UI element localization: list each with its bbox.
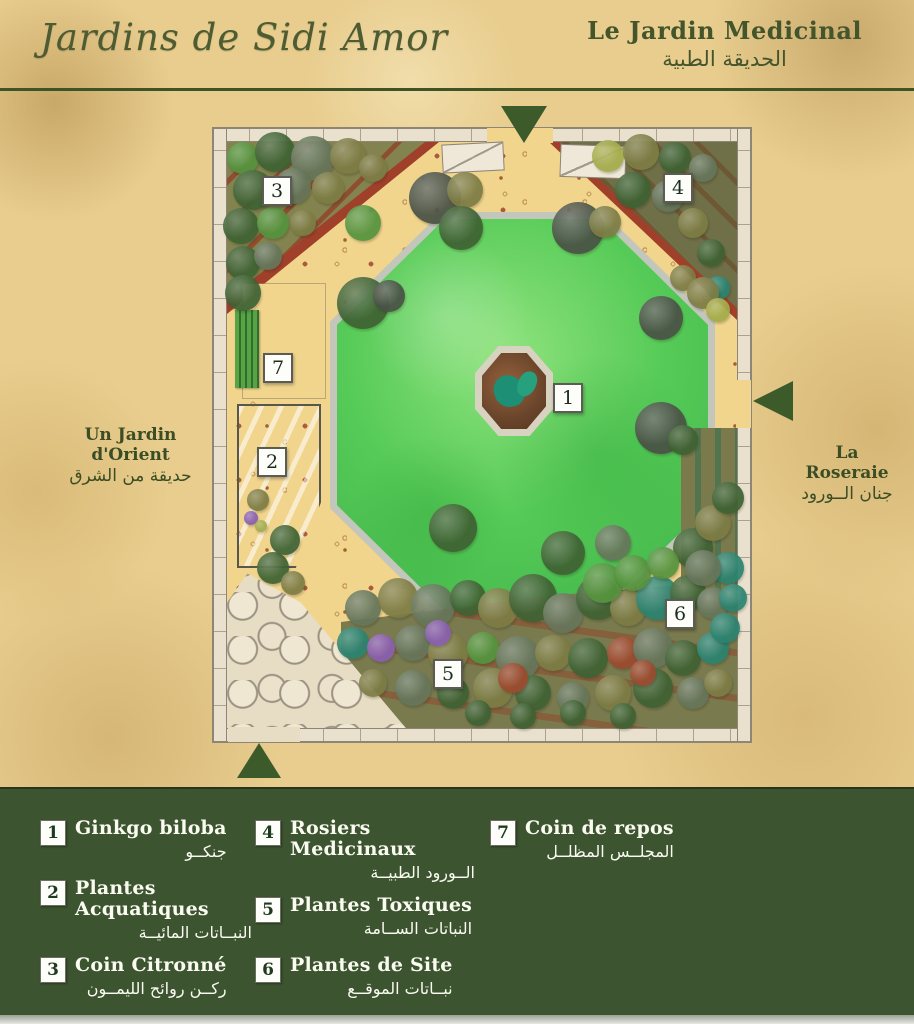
plant-blob	[685, 550, 721, 586]
plant-blob	[373, 280, 405, 312]
plant-blob	[395, 670, 431, 706]
central-planter-soil	[482, 353, 546, 429]
legend-column-1: 1 Ginkgo bilobaجنكــو 2 Plantes Acquatiq…	[40, 818, 252, 1015]
legend-column-3: 7 Coin de reposالمجلــس المظلــل	[490, 818, 710, 878]
legend-badge-5: 5	[255, 897, 281, 923]
plant-blob	[510, 703, 536, 729]
plant-blob	[615, 172, 651, 208]
plant-blob	[281, 571, 305, 595]
plant-blob	[610, 703, 636, 729]
page-title: Jardins de Sidi Amor	[40, 16, 448, 59]
label-roseraie: La Roseraie جنان الــورود	[792, 443, 902, 504]
bench-icon	[235, 310, 259, 388]
plant-blob	[225, 275, 261, 311]
plant-blob	[312, 172, 344, 204]
wall-top	[213, 128, 751, 142]
plant-blob	[560, 700, 586, 726]
legend-badge-2: 2	[40, 880, 66, 906]
legend-item-7: 7 Coin de reposالمجلــس المظلــل	[490, 818, 710, 865]
legend-6-french: Plantes de Site	[290, 955, 453, 976]
gate-right	[736, 380, 751, 428]
plant-blob	[535, 635, 571, 671]
legend-item-5: 5 Plantes Toxiquesالنباتات الســامة	[255, 895, 475, 942]
legend-3-french: Coin Citronné	[75, 955, 227, 976]
plant-blob	[541, 531, 585, 575]
plant-blob	[270, 525, 300, 555]
poster: Jardins de Sidi Amor Le Jardin Medicinal…	[0, 0, 914, 1024]
plant-blob	[345, 205, 381, 241]
legend-3-arabic: ركــن روائح الليمــون	[75, 979, 227, 998]
plant-blob	[359, 669, 387, 697]
legend-item-1: 1 Ginkgo bilobaجنكــو	[40, 818, 252, 865]
entrance-arrow-right-icon	[753, 381, 793, 421]
legend-item-2: 2 Plantes Acquatiquesالنبــاتات المائيــ…	[40, 878, 252, 942]
legend-item-4: 4 Rosiers Medicinauxالــورود الطبيــة	[255, 818, 475, 882]
subtitle-arabic: الحديقة الطبية	[587, 47, 862, 71]
plant-blob	[467, 632, 499, 664]
legend-4-arabic: الــورود الطبيــة	[290, 863, 475, 882]
plant-blob	[337, 627, 369, 659]
plant-blob	[704, 669, 732, 697]
plant-blob	[290, 210, 316, 236]
marker-1-ginkgo: 1	[553, 383, 583, 413]
plant-blob	[706, 298, 730, 322]
garden-subtitle: Le Jardin Medicinal الحديقة الطبية	[587, 16, 862, 71]
legend-7-french: Coin de repos	[525, 818, 674, 839]
plant-blob	[630, 660, 656, 686]
label-jardin-orient-arabic: حديقة من الشرق	[58, 466, 203, 486]
plant-blob	[429, 504, 477, 552]
plant-blob	[712, 482, 744, 514]
plant-blob	[223, 208, 259, 244]
legend-item-6: 6 Plantes de Siteنبــاتات الموقــع	[255, 955, 475, 1002]
plant-blob	[255, 132, 295, 172]
subtitle-french: Le Jardin Medicinal	[587, 16, 862, 45]
plant-blob	[439, 206, 483, 250]
garden-map: 1 2 3 4 5 6 7	[213, 128, 751, 742]
legend-badge-1: 1	[40, 820, 66, 846]
header-divider	[0, 88, 914, 91]
plant-blob	[665, 640, 701, 676]
legend-item-3: 3 Coin Citronnéركــن روائح الليمــون	[40, 955, 252, 1002]
legend-badge-7: 7	[490, 820, 516, 846]
legend-6-arabic: نبــاتات الموقــع	[290, 979, 453, 998]
plant-blob	[255, 520, 267, 532]
label-jardin-orient: Un Jardin d'Orient حديقة من الشرق	[58, 425, 203, 486]
plant-blob	[623, 134, 659, 170]
marker-3-coin-citronne: 3	[262, 176, 292, 206]
legend-5-arabic: النباتات الســامة	[290, 919, 472, 938]
legend-7-arabic: المجلــس المظلــل	[525, 842, 674, 861]
legend-1-arabic: جنكــو	[75, 842, 227, 861]
marker-7-coin-repos: 7	[263, 353, 293, 383]
bottom-strip	[0, 1015, 914, 1024]
marker-4-rosiers: 4	[663, 173, 693, 203]
legend-badge-3: 3	[40, 957, 66, 983]
plant-blob	[345, 590, 381, 626]
label-jardin-orient-french: Un Jardin d'Orient	[58, 425, 203, 465]
legend-badge-6: 6	[255, 957, 281, 983]
plant-blob	[367, 634, 395, 662]
plant-blob	[247, 489, 269, 511]
plant-blob	[719, 584, 747, 612]
legend-2-french: Plantes Acquatiques	[75, 878, 252, 920]
plant-blob	[697, 239, 725, 267]
marker-2-plantes-aquatiques: 2	[257, 447, 287, 477]
plant-blob	[498, 663, 528, 693]
marker-6-plantes-site: 6	[665, 599, 695, 629]
central-planter	[475, 346, 553, 436]
plant-blob	[710, 613, 740, 643]
entry-planter-left	[442, 142, 503, 172]
marker-5-plantes-toxiques: 5	[433, 659, 463, 689]
plant-blob	[639, 296, 683, 340]
plant-blob	[592, 140, 624, 172]
plant-blob	[465, 700, 491, 726]
legend: 1 Ginkgo bilobaجنكــو 2 Plantes Acquatiq…	[0, 787, 914, 1019]
plant-blob	[589, 206, 621, 238]
wall-right	[737, 128, 751, 742]
plant-blob	[668, 425, 698, 455]
legend-1-french: Ginkgo biloba	[75, 818, 227, 839]
label-roseraie-french: La Roseraie	[792, 443, 902, 483]
entrance-arrow-bottom-icon	[237, 743, 281, 778]
plant-blob	[447, 172, 483, 208]
gate-bottom	[228, 727, 300, 742]
plant-blob	[689, 154, 717, 182]
label-roseraie-arabic: جنان الــورود	[792, 484, 902, 504]
plant-blob	[615, 555, 651, 591]
legend-4-french: Rosiers Medicinaux	[290, 818, 475, 860]
plant-blob	[647, 547, 679, 579]
entrance-arrow-top-icon	[501, 106, 547, 143]
legend-badge-4: 4	[255, 820, 281, 846]
plant-blob	[257, 207, 289, 239]
legend-column-2: 4 Rosiers Medicinauxالــورود الطبيــة 5 …	[255, 818, 475, 1015]
plant-blob	[425, 620, 451, 646]
legend-2-arabic: النبــاتات المائيــة	[75, 923, 252, 942]
legend-5-french: Plantes Toxiques	[290, 895, 472, 916]
plant-blob	[659, 142, 691, 174]
plant-blob	[359, 154, 387, 182]
plant-blob	[254, 242, 282, 270]
plant-blob	[678, 208, 708, 238]
plant-blob	[568, 638, 608, 678]
